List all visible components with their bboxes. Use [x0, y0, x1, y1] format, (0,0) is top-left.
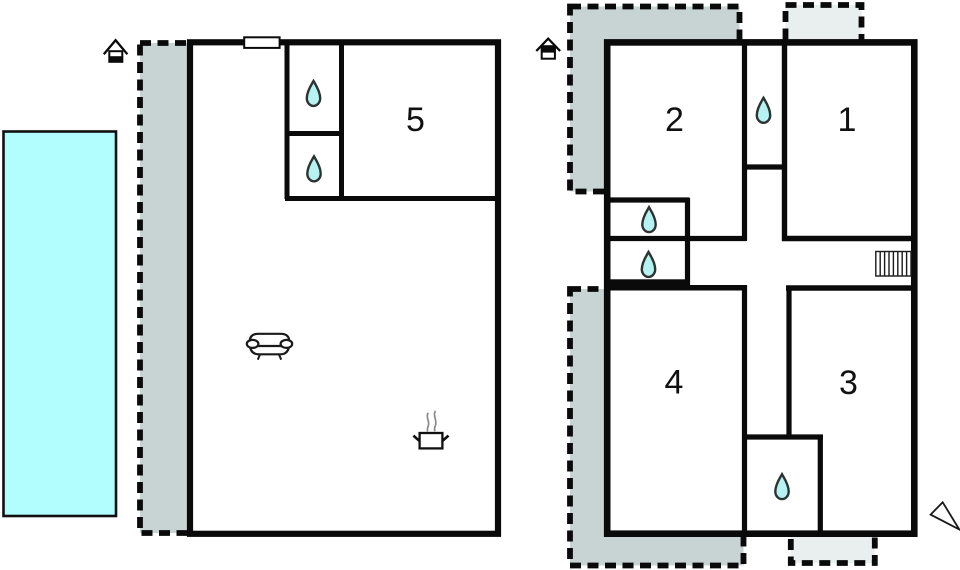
svg-text:2: 2 — [665, 101, 684, 139]
svg-text:1: 1 — [838, 101, 857, 139]
svg-text:4: 4 — [665, 364, 684, 402]
svg-text:5: 5 — [406, 101, 425, 139]
svg-text:3: 3 — [839, 364, 858, 402]
